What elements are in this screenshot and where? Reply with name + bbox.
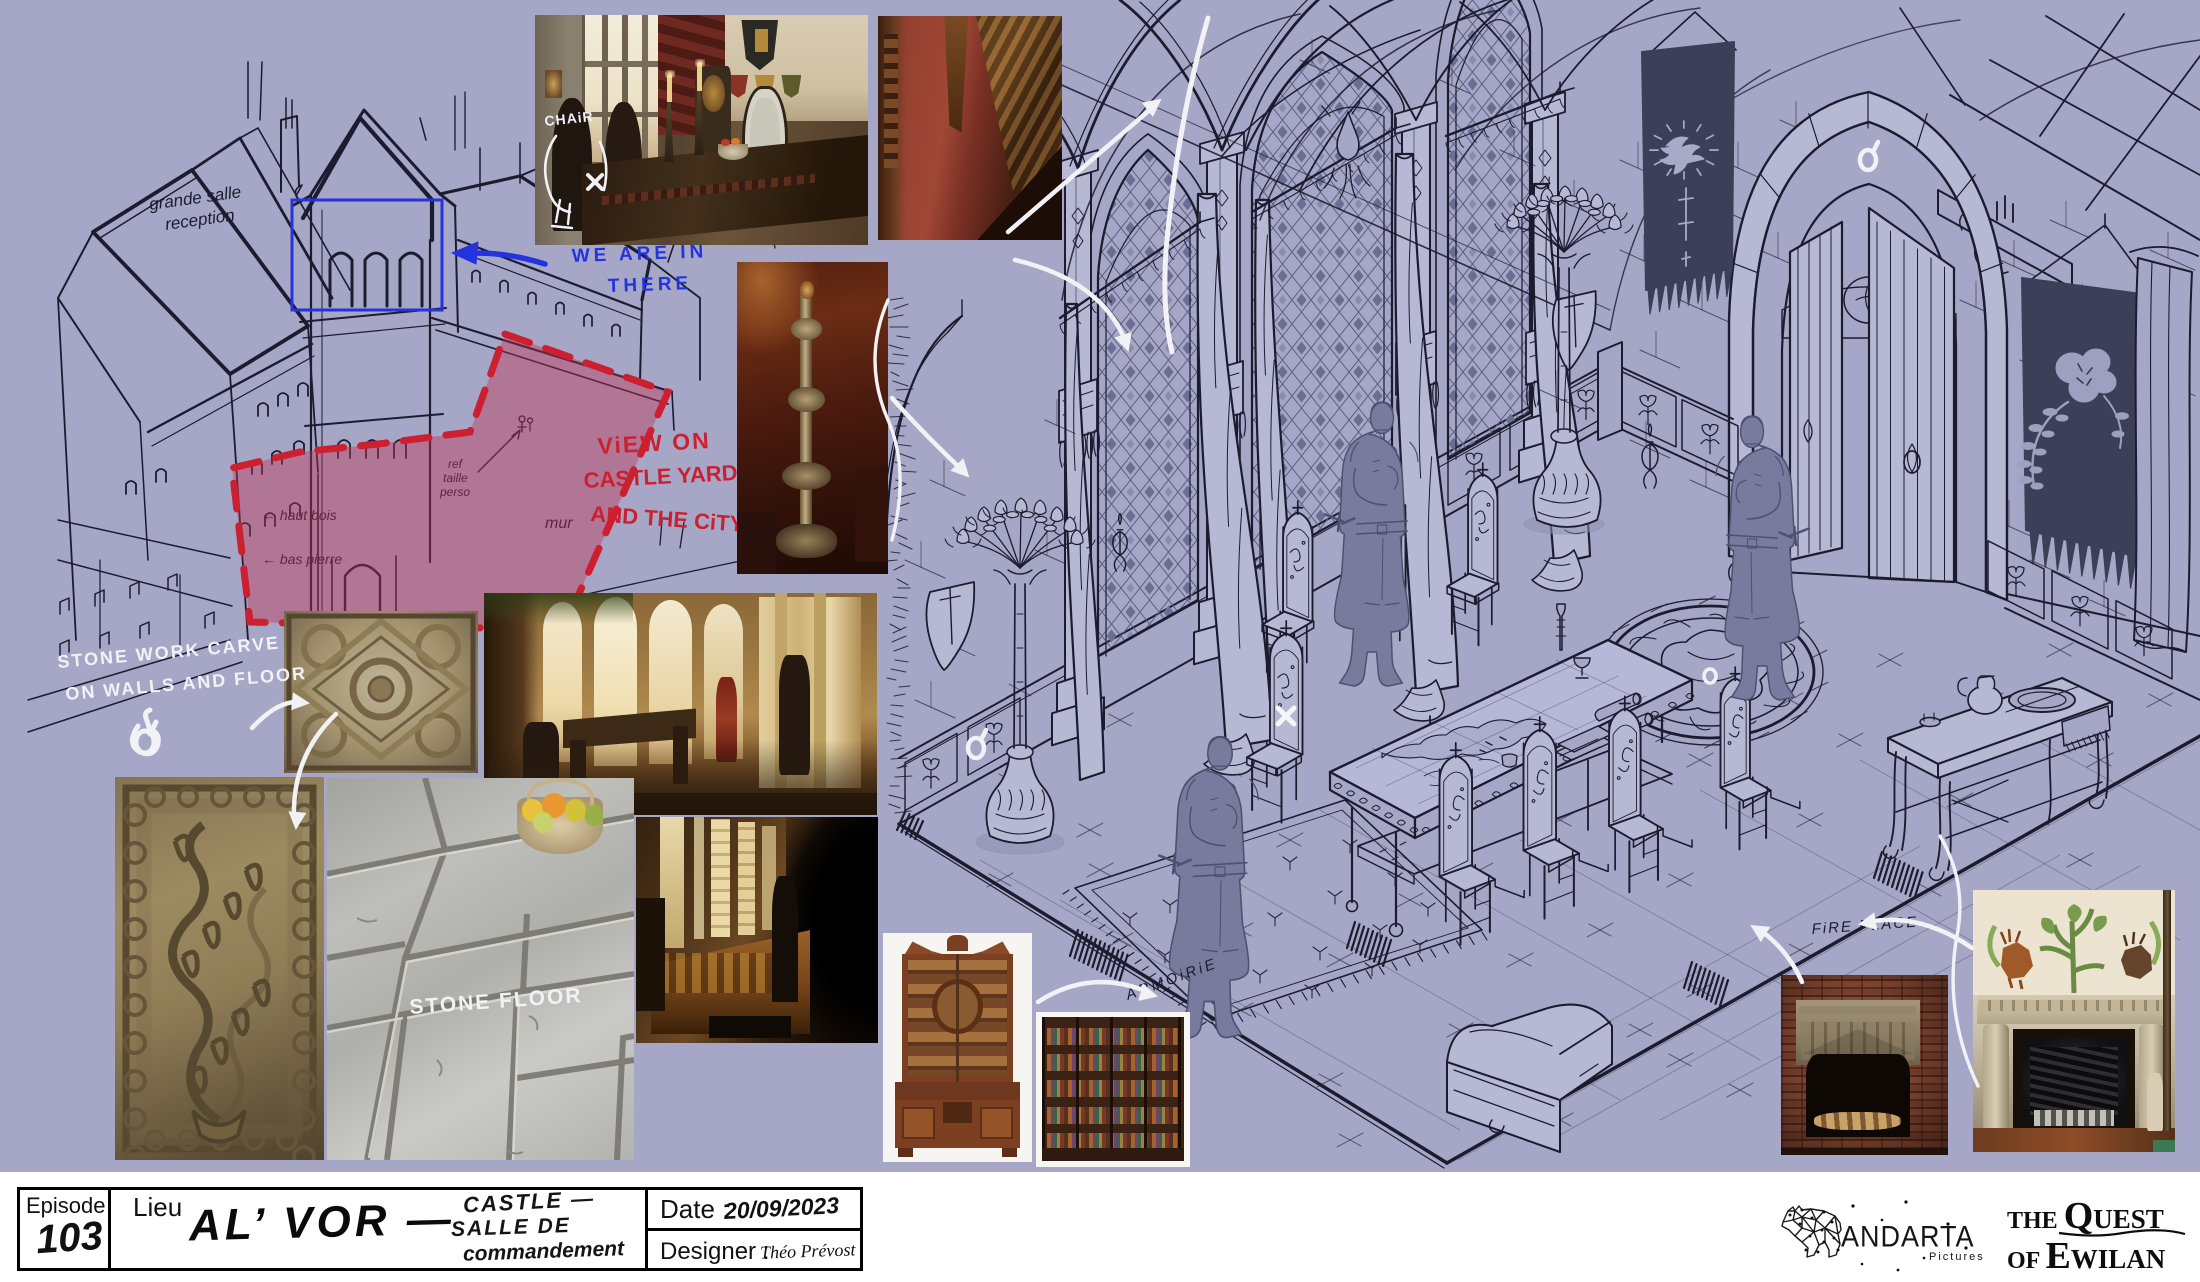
- svg-text:STONE WORK CARVE: STONE WORK CARVE: [57, 633, 281, 672]
- svg-text:ON WALLS AND FLOOR: ON WALLS AND FLOOR: [65, 663, 308, 704]
- svg-text:CHAiR: CHAiR: [544, 108, 595, 129]
- svg-text:STONE FLOOR: STONE FLOOR: [409, 984, 583, 1019]
